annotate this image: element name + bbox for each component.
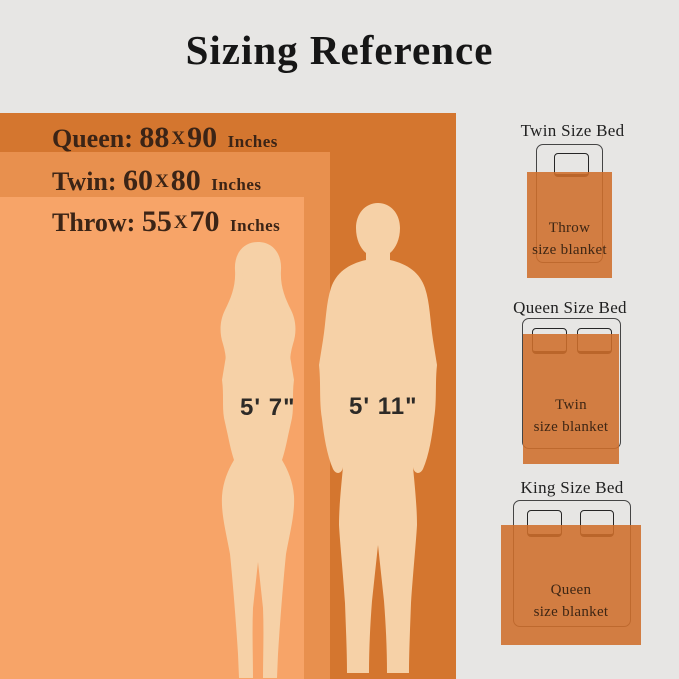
page-title: Sizing Reference — [0, 26, 679, 74]
woman-silhouette-svg — [206, 240, 310, 679]
size-label-twin: Twin: 60X80 Inches — [52, 164, 262, 198]
size-unit: Inches — [211, 175, 261, 194]
times-separator: X — [155, 171, 169, 192]
blanket-label: Throw size blanket — [527, 217, 612, 261]
man-silhouette — [310, 203, 446, 675]
bed-title-twin: Twin Size Bed — [505, 121, 640, 141]
queen-blanket-overlay: Queen size blanket — [501, 525, 641, 645]
blanket-label-line2: size blanket — [501, 601, 641, 623]
blanket-label-line1: Queen — [501, 579, 641, 601]
blanket-label: Twin size blanket — [523, 394, 619, 438]
size-label-queen: Queen: 88X90 Inches — [52, 121, 278, 155]
blanket-label: Queen size blanket — [501, 579, 641, 623]
woman-silhouette — [206, 240, 310, 679]
times-separator: X — [174, 212, 188, 233]
size-width: 55 — [142, 205, 172, 238]
size-height: 80 — [171, 164, 201, 197]
twin-blanket-overlay: Twin size blanket — [523, 334, 619, 464]
size-name: Twin: — [52, 167, 117, 196]
size-unit: Inches — [228, 132, 278, 151]
size-name: Queen: — [52, 124, 133, 153]
man-height-label: 5' 11" — [349, 393, 417, 421]
blanket-label-line1: Twin — [523, 394, 619, 416]
sizing-reference-infographic: Sizing Reference Queen: 88X90 Inches Twi… — [0, 0, 679, 679]
blanket-label-line2: size blanket — [523, 416, 619, 438]
man-silhouette-svg — [310, 203, 446, 675]
blanket-label-line1: Throw — [527, 217, 612, 239]
size-height: 70 — [190, 205, 220, 238]
woman-height-label: 5' 7" — [240, 394, 295, 422]
blanket-label-line2: size blanket — [527, 239, 612, 261]
size-width: 88 — [139, 121, 169, 154]
times-separator: X — [171, 128, 185, 149]
size-height: 90 — [187, 121, 217, 154]
bed-title-king: King Size Bed — [497, 478, 647, 498]
size-name: Throw: — [52, 208, 135, 237]
size-width: 60 — [123, 164, 153, 197]
throw-blanket-overlay: Throw size blanket — [527, 172, 612, 278]
size-unit: Inches — [230, 216, 280, 235]
bed-title-queen: Queen Size Bed — [495, 298, 645, 318]
size-label-throw: Throw: 55X70 Inches — [52, 205, 280, 239]
